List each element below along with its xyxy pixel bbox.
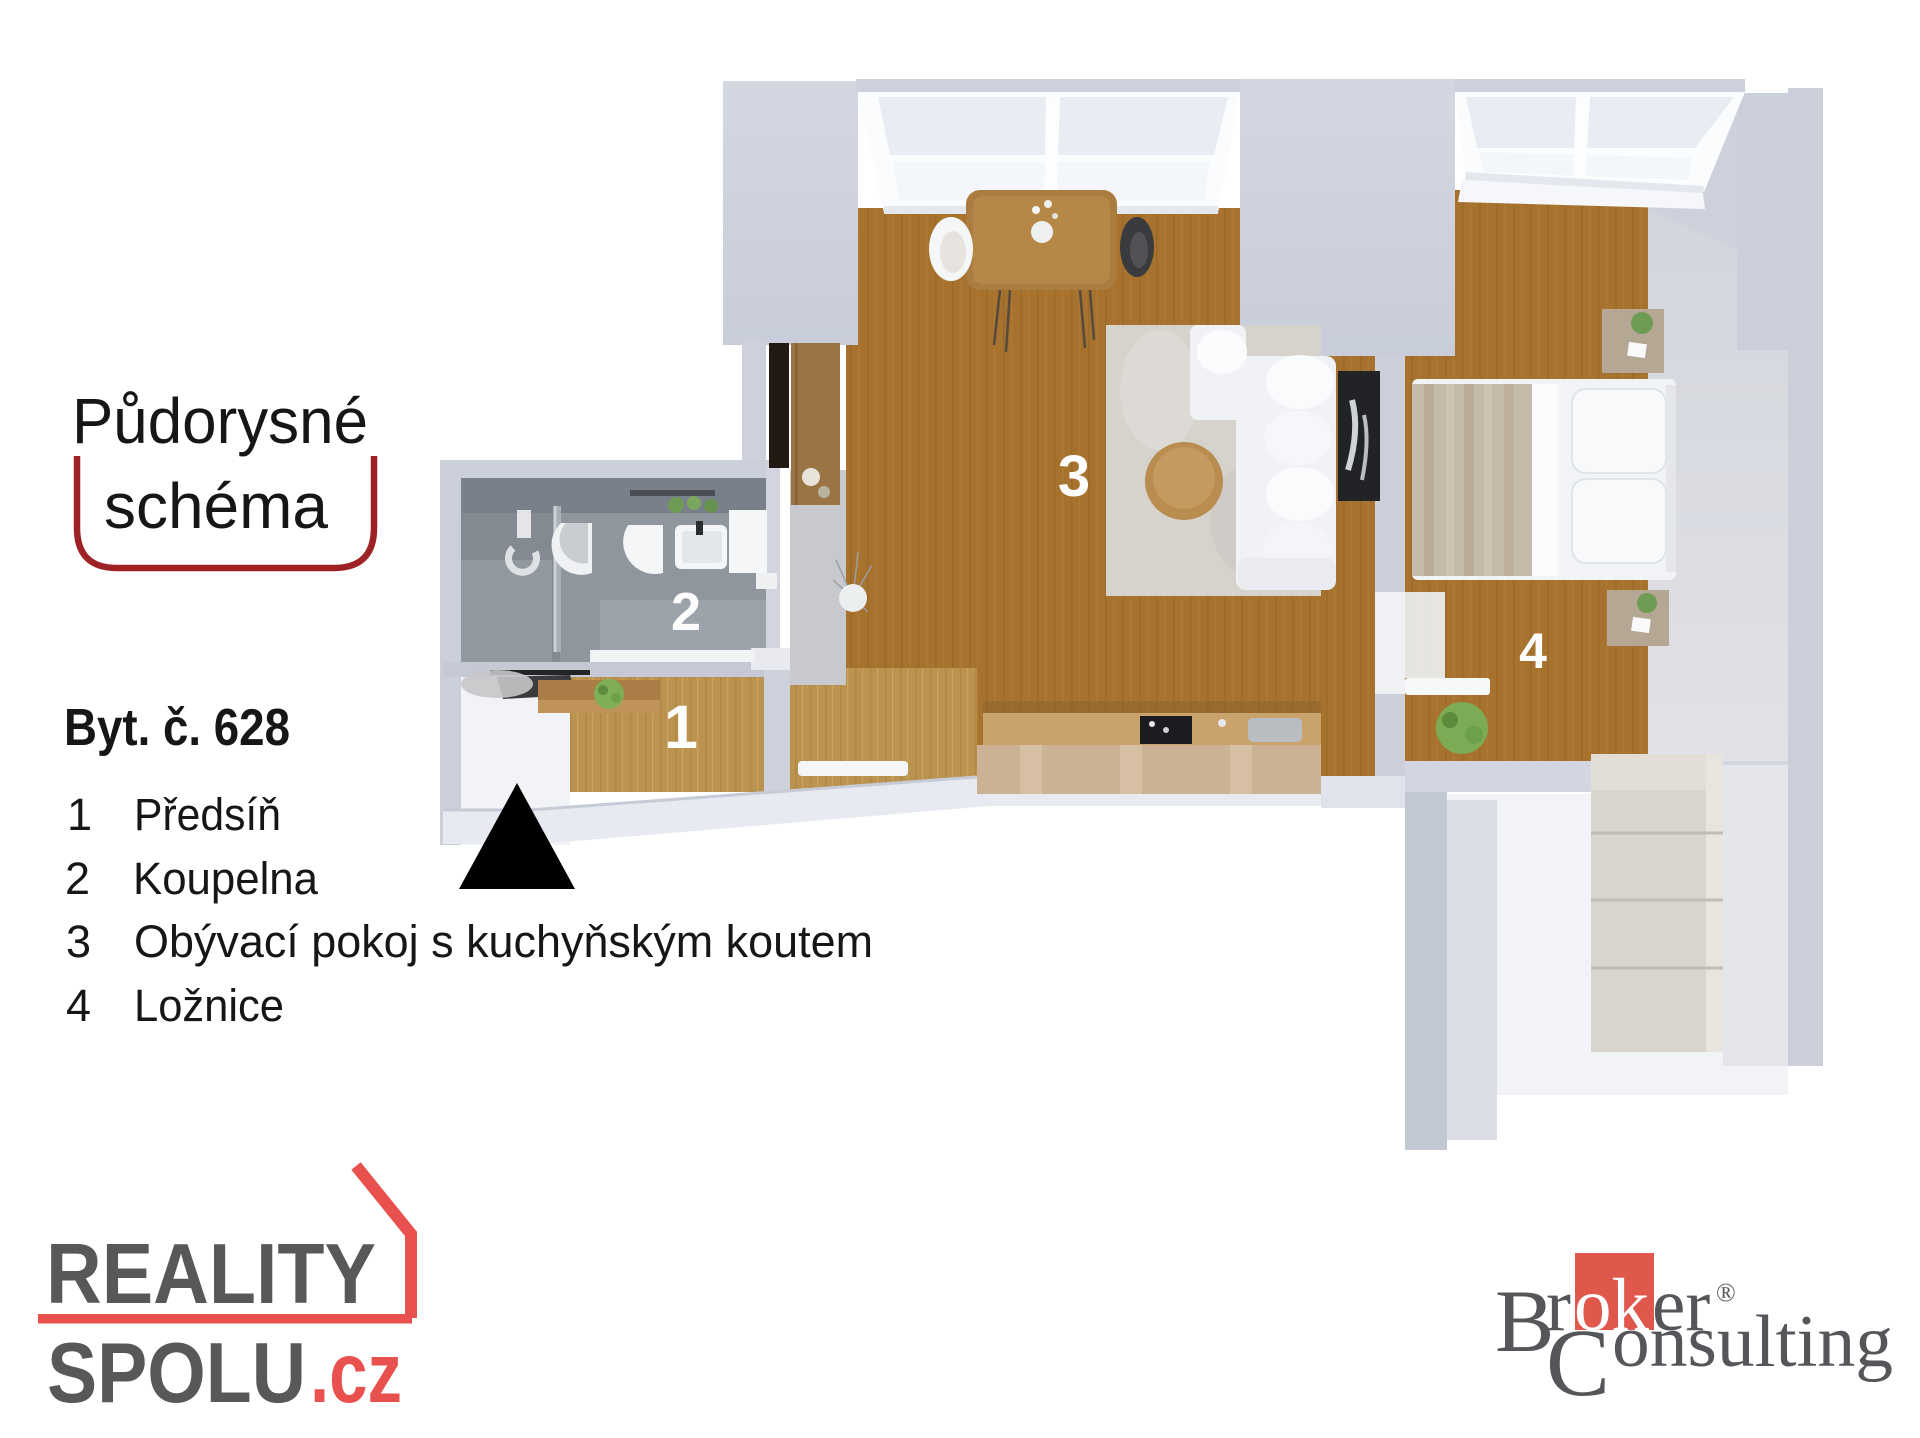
svg-text:onsulting: onsulting	[1612, 1301, 1893, 1383]
svg-text:1: 1	[664, 693, 698, 761]
svg-text:Půdorysné: Půdorysné	[72, 385, 368, 457]
svg-text:2: 2	[65, 853, 90, 904]
svg-text:4: 4	[66, 980, 91, 1031]
svg-text:.cz: .cz	[310, 1326, 402, 1421]
svg-text:Předsíň: Předsíň	[134, 789, 281, 840]
svg-text:Ložnice: Ložnice	[134, 980, 284, 1031]
svg-text:3: 3	[1058, 444, 1090, 509]
svg-text:3: 3	[66, 916, 91, 967]
svg-text:REALITY: REALITY	[46, 1227, 376, 1322]
svg-text:Obývací pokoj s kuchyňským kou: Obývací pokoj s kuchyňským koutem	[134, 916, 873, 967]
svg-text:4: 4	[1519, 623, 1547, 679]
svg-text:SPOLU: SPOLU	[47, 1326, 306, 1421]
svg-text:1: 1	[67, 789, 92, 840]
svg-text:C: C	[1546, 1309, 1610, 1416]
svg-text:2: 2	[671, 582, 701, 642]
svg-text:schéma: schéma	[104, 470, 328, 542]
svg-text:Koupelna: Koupelna	[133, 853, 319, 904]
svg-text:Byt. č. 628: Byt. č. 628	[64, 699, 290, 757]
